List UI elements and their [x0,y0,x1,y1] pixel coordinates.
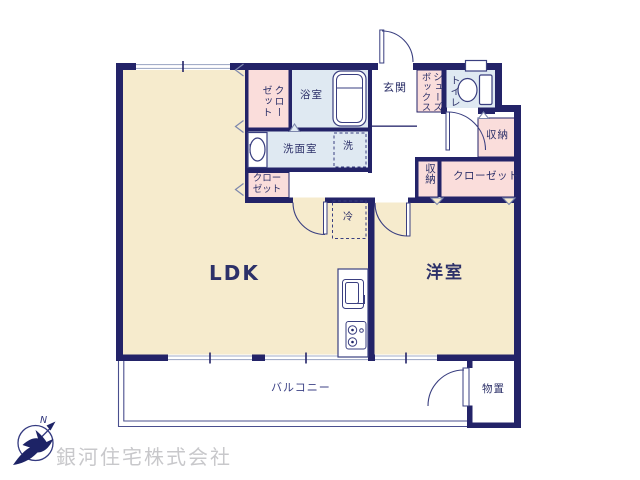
compass-north-label: N [40,416,47,427]
floor-plan-drawing [0,0,640,480]
room-label-storage-shed: 物置 [482,383,505,395]
wall-segment [245,198,293,204]
toilet-window [466,61,487,72]
wall-right-upper [495,63,502,112]
shed-door-leaf [463,368,469,406]
room-label-closet-right: クローゼット [453,170,519,182]
room-label-washroom: 洗面室 [283,143,318,155]
toilet-tank [480,75,493,105]
room-label-toilet: トイレ [445,75,459,115]
label-laundry: 洗 [343,141,353,153]
room-label-western-room: 洋室 [426,264,464,284]
sink-icon [250,138,265,161]
floor-plan: LDK 洋室 玄関 浴室 洗面室 洗 冷 クローゼット クロー ゼット シューズ… [0,0,640,480]
wall-segment [415,157,515,161]
stove-burner-dot [351,341,354,344]
label-fridge: 冷 [343,212,353,224]
room-label-balcony: バルコニー [271,382,331,395]
entrance-door-arc [382,31,413,62]
ldk-door-leaf [324,202,328,234]
shed-door-arc [428,370,464,406]
wall-segment [252,355,265,362]
wall-segment [116,355,168,362]
wall-segment [478,108,495,115]
room-label-storage-small: 収納 [421,163,436,191]
wall-segment [245,128,372,132]
room-label-closet-mid: クロー ゼット [245,174,289,196]
wall-left [116,63,123,361]
room-label-closet-top: クローゼット [253,85,283,122]
wall-right [514,105,521,428]
wall-segment [415,157,419,198]
wall-segment [325,198,375,204]
toilet-door-leaf [446,112,450,150]
wall-segment [230,63,378,70]
bathtub-icon [333,71,366,126]
wall-room-divider [368,198,375,362]
wall-segment [438,161,441,197]
toilet-bowl-icon [458,79,477,102]
wall-segment [368,63,372,173]
western-room-door-leaf [407,203,411,236]
entrance-step-line [372,126,417,127]
room-label-ldk: LDK [209,262,260,285]
wall-segment [408,198,515,204]
wall-segment [413,63,466,70]
wall-segment [437,355,521,362]
stove-burner-dot [351,329,354,332]
entrance-door-leaf [380,30,384,63]
room-label-bathroom: 浴室 [300,89,323,101]
wall-shed [467,357,473,368]
ldk-area [123,70,246,356]
company-name: 銀河住宅株式会社 [56,446,232,469]
room-label-entrance: 玄関 [383,82,407,95]
compass-arrowhead [47,422,56,431]
wall-segment [289,70,293,132]
room-label-storage-hall: 収納 [486,129,509,141]
compass-icon [13,422,56,466]
room-label-shoes-box: シューズボックス [417,72,442,114]
wall-segment [245,168,372,173]
wall-shed [467,423,521,429]
